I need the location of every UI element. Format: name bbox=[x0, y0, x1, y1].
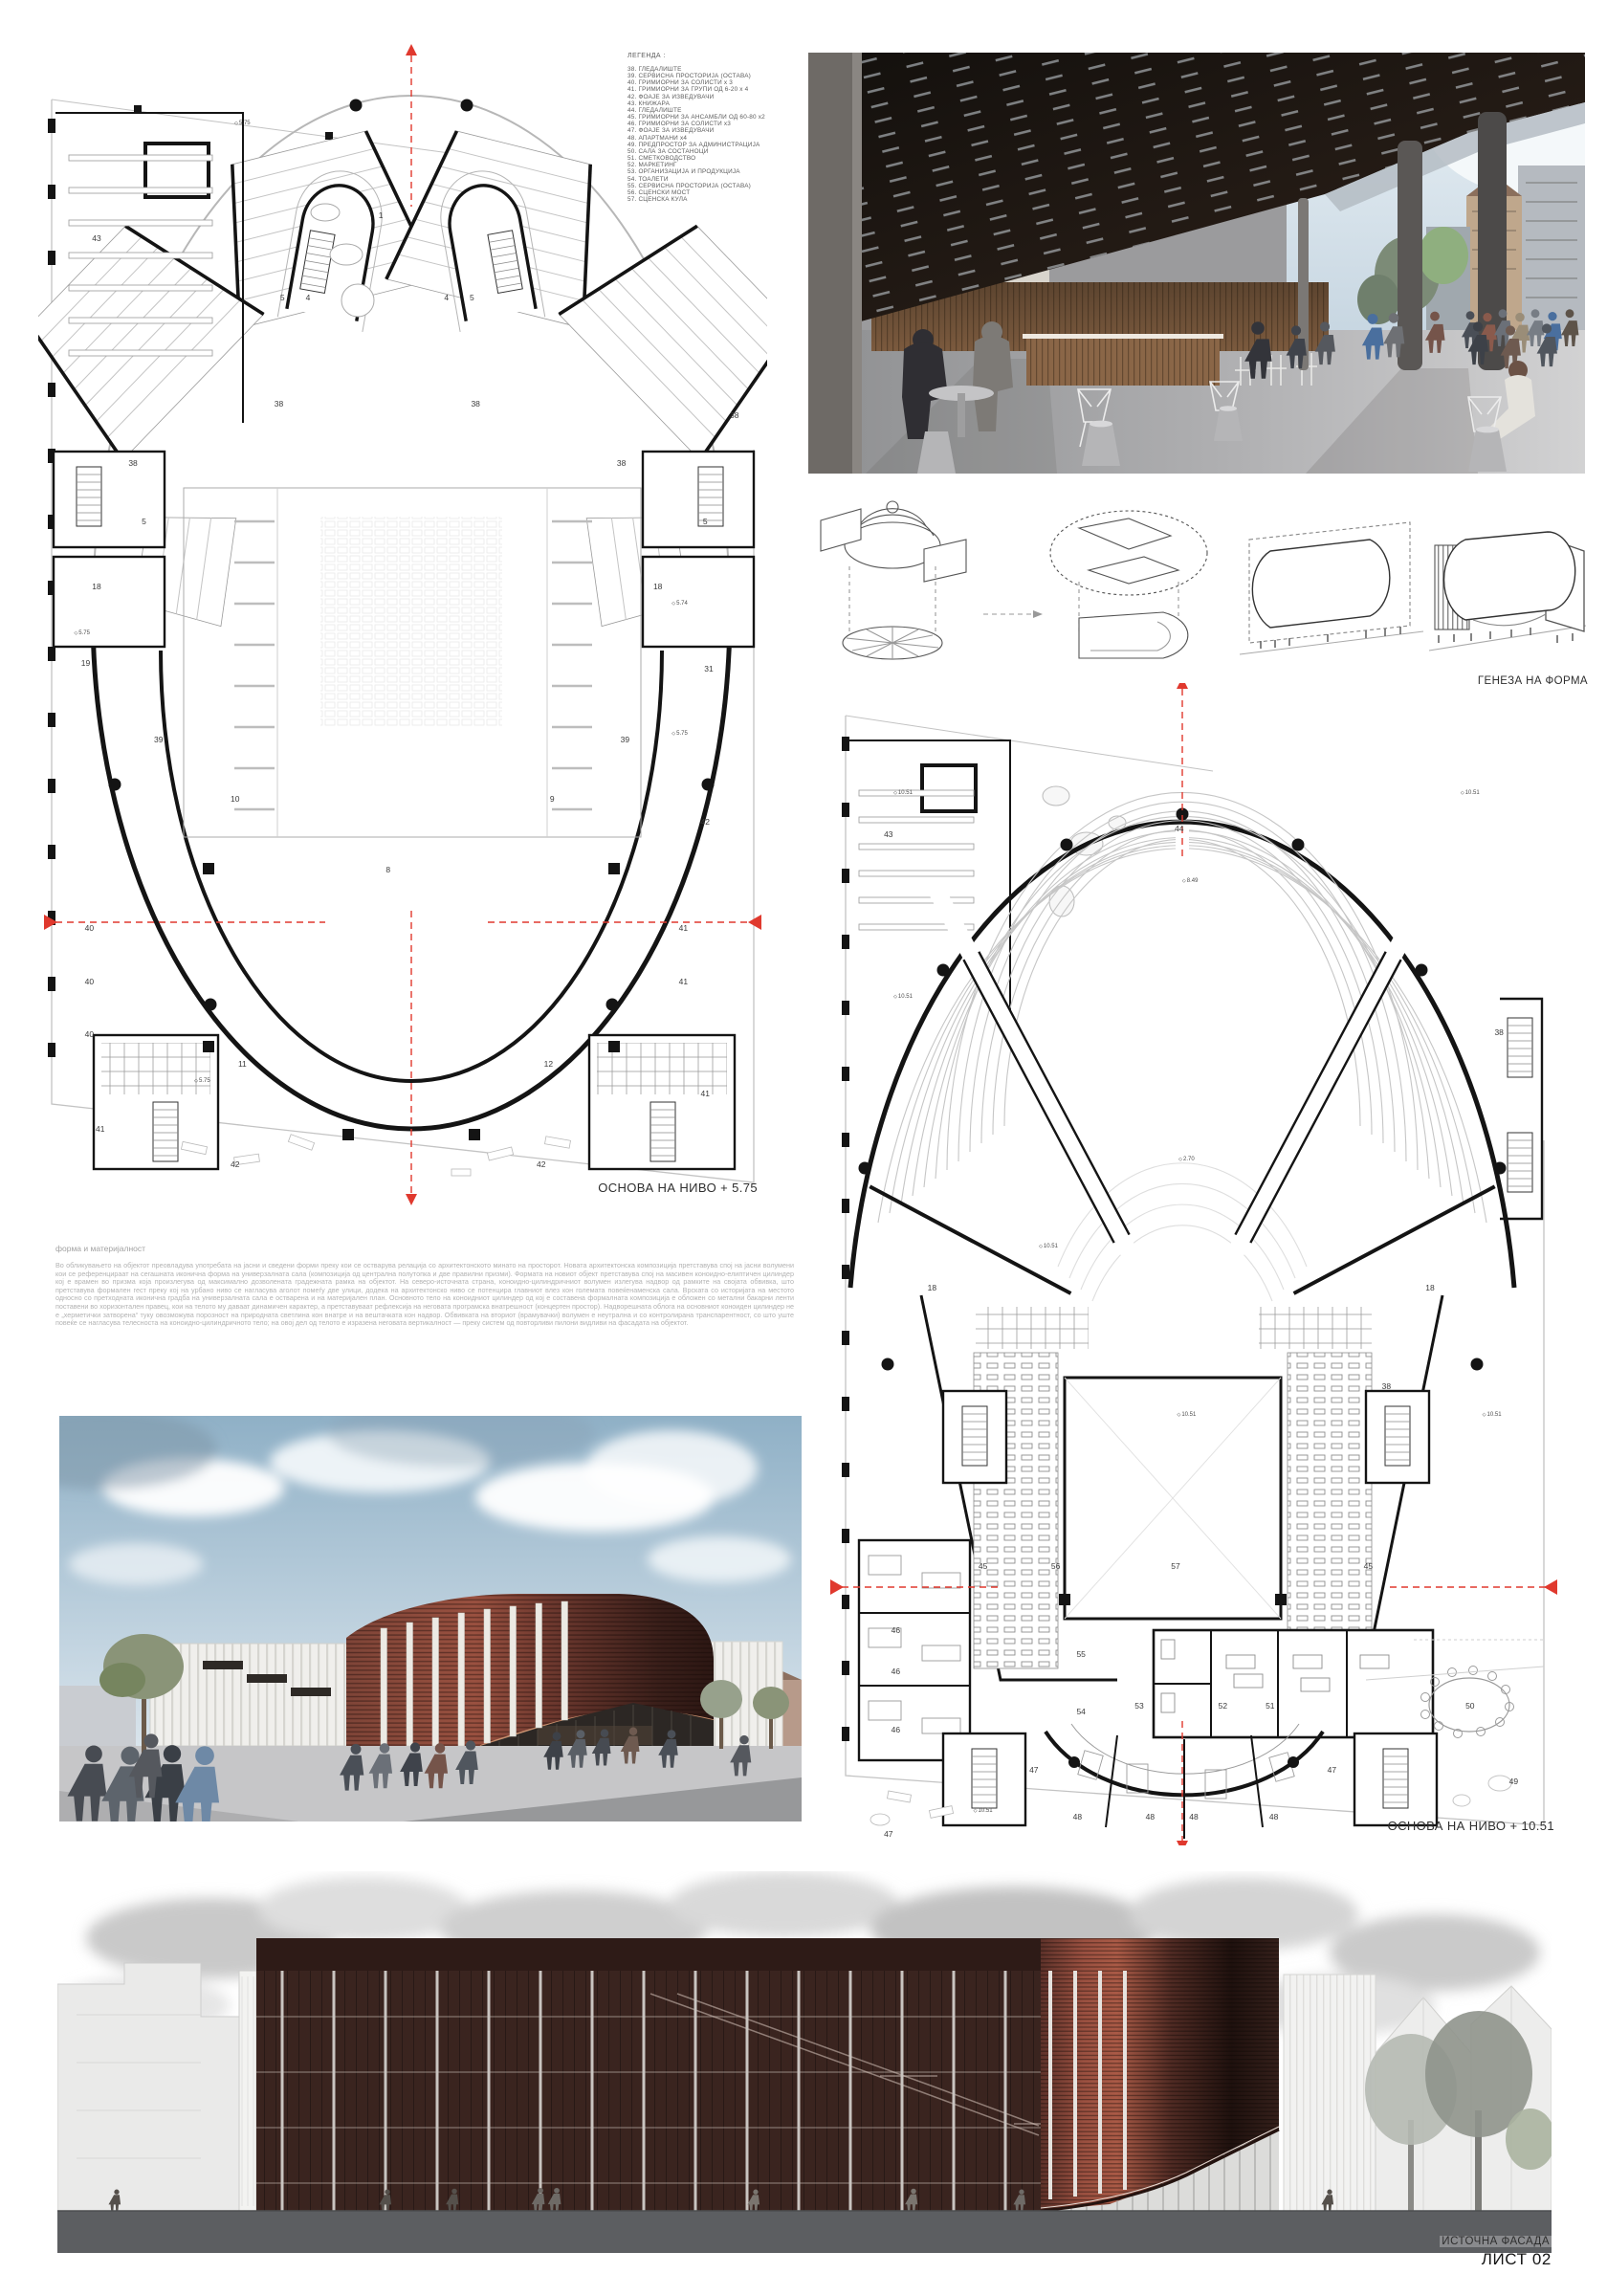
foreground-column bbox=[808, 53, 852, 474]
floor-plan-level-10-51: 4344383818184556574546464655545352515047… bbox=[830, 683, 1557, 1845]
floor-plan-level-10-51-drawing bbox=[830, 683, 1557, 1845]
office-level bbox=[859, 1295, 1544, 1839]
legend-item: 48. АПАРТМАНИ x4 bbox=[627, 135, 809, 142]
legend-item: 38. ГЛЕДАЛИШТЕ bbox=[627, 66, 809, 73]
legend-item: 51. СМЕТКОВОДСТВО bbox=[627, 155, 809, 162]
genesis-existing-hall bbox=[821, 501, 966, 659]
ground-band bbox=[57, 2211, 1552, 2253]
legend-item: 40. ГРИМИОРНИ ЗА СОЛИСТИ x 3 bbox=[627, 79, 809, 86]
foyer-furniture bbox=[870, 1791, 954, 1825]
white-louvered-slab bbox=[150, 1644, 378, 1746]
arena-floor bbox=[184, 488, 641, 1140]
genesis-final-volume bbox=[1429, 532, 1586, 651]
presentation-sheet: 1435445383838383855181819313939109842404… bbox=[0, 0, 1607, 2296]
essay-body: Во обликувањето на објектот преовладува … bbox=[55, 1262, 794, 1328]
form-genesis-diagrams bbox=[792, 490, 1588, 677]
legend-item: 56. СЦЕНСКИ МОСТ bbox=[627, 189, 809, 196]
plaza-render bbox=[808, 53, 1585, 474]
essay-title: форма и материјалност bbox=[55, 1244, 794, 1253]
legend-item: 57. СЦЕНСКА КУЛА bbox=[627, 196, 809, 203]
east-elevation bbox=[57, 1871, 1552, 2254]
genesis-footprint bbox=[1050, 511, 1207, 658]
legend-item: 42. ФОАЈЕ ЗА ИЗВЕДУВАЧИ bbox=[627, 94, 809, 100]
floor-plan-level-5-75: 1435445383838383855181819313939109842404… bbox=[38, 38, 767, 1217]
legend-item: 39. СЕРВИСНА ПРОСТОРИЈА (ОСТАВА) bbox=[627, 73, 809, 79]
legend-item: 43. КНИЖАРА bbox=[627, 100, 809, 107]
legend-item: 41. ГРИМИОРНИ ЗА ГРУПИ ОД 6-20 x 4 bbox=[627, 86, 809, 93]
genesis-volume-frame bbox=[1240, 522, 1423, 654]
legend-item: 49. ПРЕДПРОСТОР ЗА АДМИНИСТРАЦИЈА bbox=[627, 142, 809, 148]
sheet-number-label: ЛИСТ 02 bbox=[1482, 2250, 1552, 2269]
legend-item: 54. ТОАЛЕТИ bbox=[627, 176, 809, 183]
plan1-caption: ОСНОВА НА НИВО + 5.75 bbox=[402, 1181, 758, 1195]
legend-item: 53. ОРГАНИЗАЦИЈА И ПРОДУКЦИЈА bbox=[627, 168, 809, 175]
legend: ЛЕГЕНДА : 38. ГЛЕДАЛИШТЕ39. СЕРВИСНА ПРО… bbox=[627, 53, 809, 203]
auditorium-fan bbox=[850, 792, 1514, 1370]
facade-label: ИСТОЧНА ФАСАДА bbox=[1440, 2236, 1552, 2247]
legend-item: 46. ГРИМИОРНИ ЗА СОЛИСТИ x3 bbox=[627, 121, 809, 127]
floor-plan-level-5-75-drawing bbox=[38, 38, 767, 1217]
legend-item: 52. МАРКЕТИНГ bbox=[627, 162, 809, 168]
legend-items: 38. ГЛЕДАЛИШТЕ39. СЕРВИСНА ПРОСТОРИЈА (О… bbox=[627, 66, 809, 203]
legend-title: ЛЕГЕНДА : bbox=[627, 53, 809, 59]
exterior-render bbox=[59, 1416, 802, 1821]
plan2-caption: ОСНОВА НА НИВО + 10.51 bbox=[1186, 1819, 1554, 1833]
essay-block: форма и материјалност Во обликувањето на… bbox=[55, 1244, 794, 1328]
main-facade bbox=[256, 1938, 1279, 2211]
legend-item: 45. ГРИМИОРНИ ЗА АНСАМБЛИ ОД 60-80 x2 bbox=[627, 114, 809, 121]
legend-item: 55. СЕРВИСНА ПРОСТОРИЈА (ОСТАВА) bbox=[627, 183, 809, 189]
legend-item: 44. ГЛЕДАЛИШТЕ bbox=[627, 107, 809, 114]
legend-item: 50. САЛА ЗА СОСТАНОЦИ bbox=[627, 148, 809, 155]
edge-stairs bbox=[1500, 999, 1542, 1219]
legend-item: 47. ФОАЈЕ ЗА ИЗВЕДУВАЧИ bbox=[627, 127, 809, 134]
